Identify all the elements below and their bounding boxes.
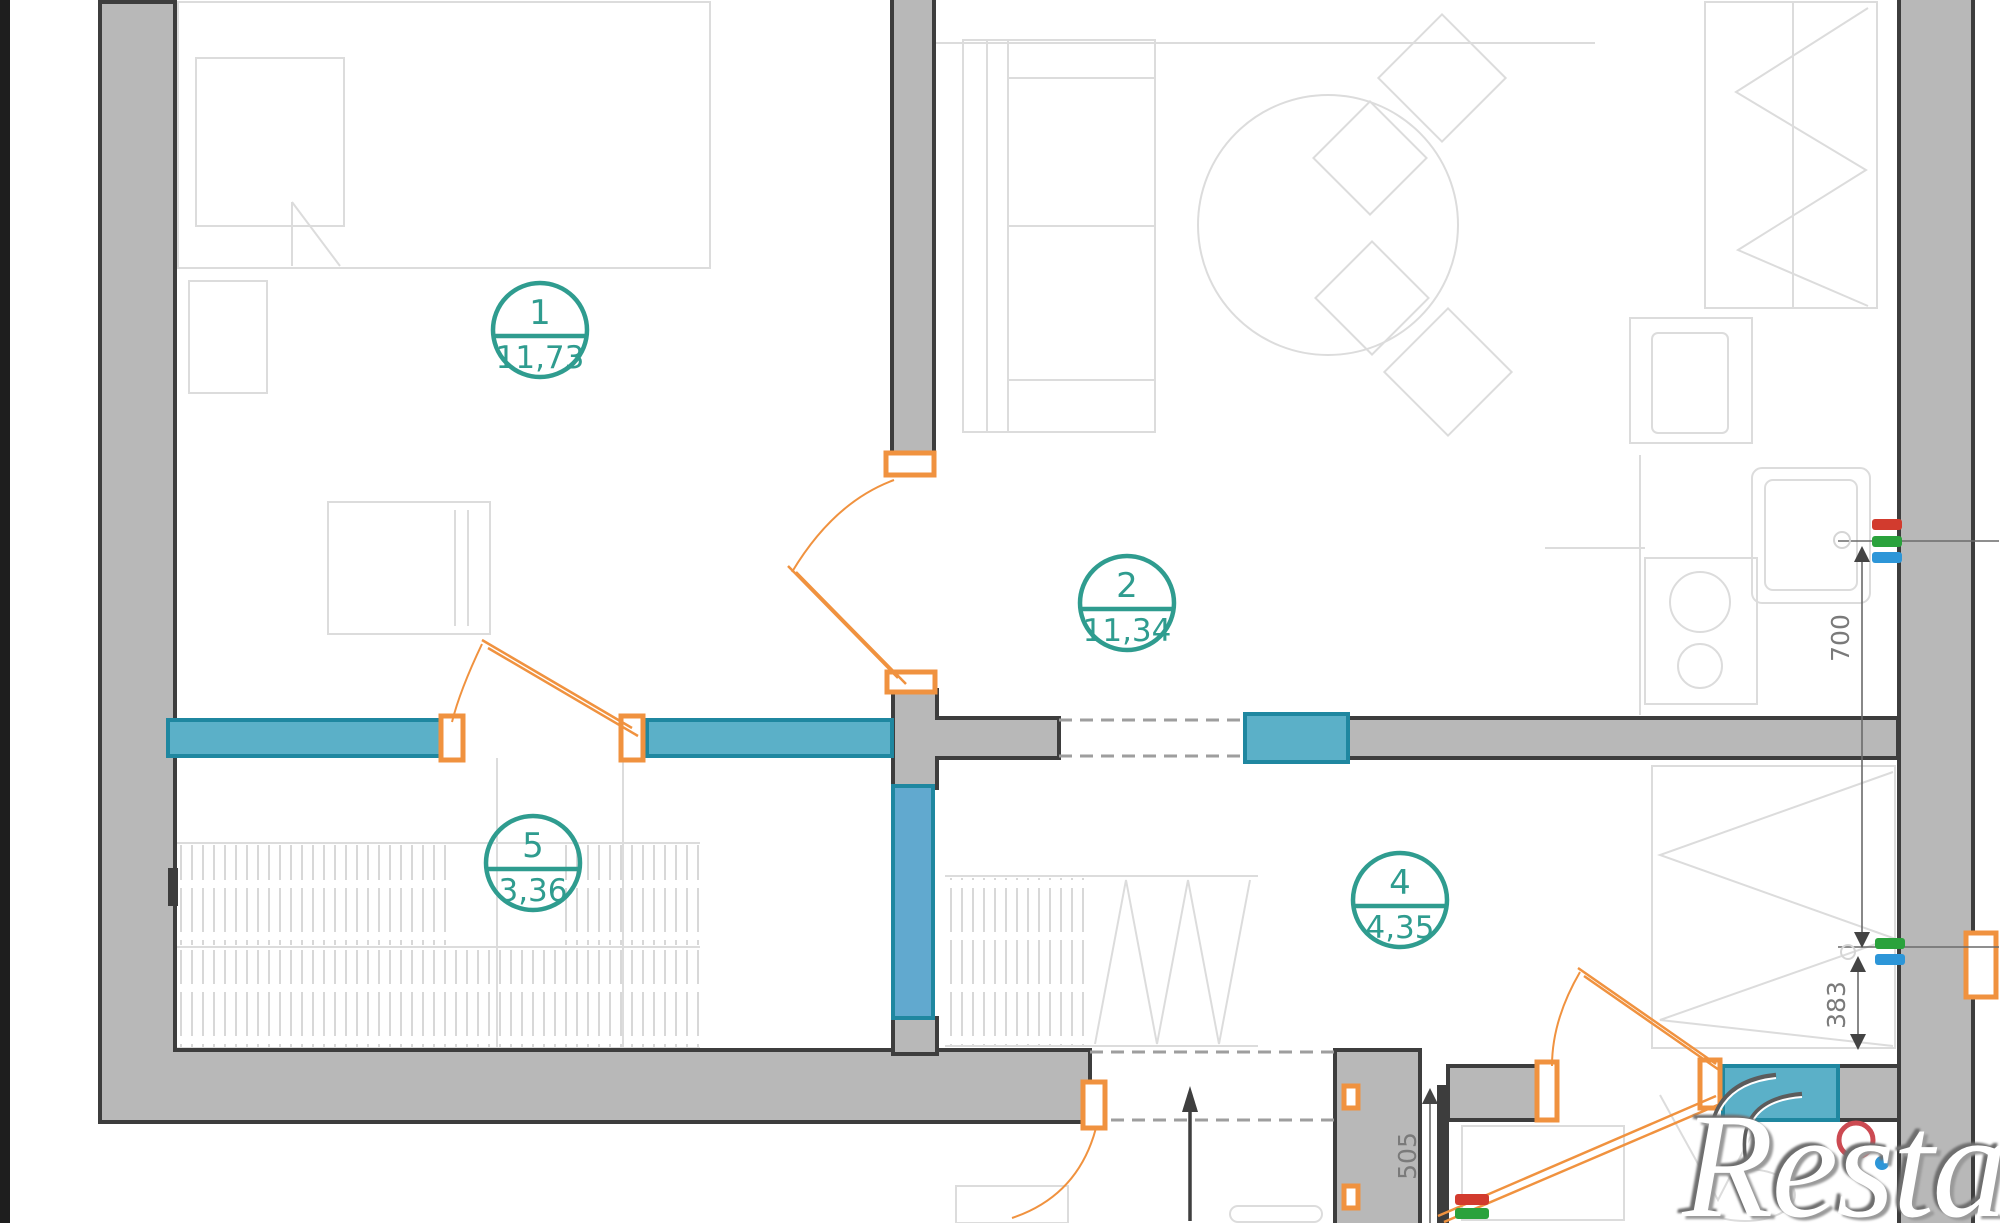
door-leaf <box>788 566 906 684</box>
sofa <box>963 40 1155 432</box>
chair <box>1315 241 1428 354</box>
counter-line <box>1545 455 1645 715</box>
washing-machine-door <box>1652 333 1728 433</box>
door-leaf <box>482 640 638 736</box>
chair <box>1313 101 1426 214</box>
washing-machine <box>1630 318 1752 443</box>
chair <box>1384 308 1511 435</box>
door-leaf <box>1578 968 1722 1072</box>
central-post <box>893 690 1059 788</box>
door-jamb <box>1344 1086 1358 1108</box>
closet-hangers <box>1736 8 1868 306</box>
dim-node <box>1834 532 1850 548</box>
room-label-4: 4 4,35 <box>1353 853 1447 947</box>
bed <box>178 2 710 268</box>
room-area: 4,35 <box>1365 910 1434 946</box>
door-jamb <box>1966 933 1996 997</box>
dimension-383: 383 <box>1822 981 1851 1029</box>
dimension-700: 700 <box>1826 614 1855 662</box>
nightstand <box>189 281 267 393</box>
bathroom-thin-wall <box>1437 1085 1449 1223</box>
riser-bar-red <box>1872 519 1902 530</box>
door-swing-arc <box>1012 1128 1096 1218</box>
burner <box>1678 644 1722 688</box>
right-outer-wall <box>1899 0 1973 1223</box>
riser-bar-blue <box>1875 954 1905 965</box>
room-number: 2 <box>1116 566 1138 606</box>
desk-shelf <box>455 510 468 626</box>
door-swing-arc <box>1552 972 1580 1066</box>
room-area: 11,34 <box>1083 613 1172 649</box>
bed-pillow <box>196 58 344 226</box>
door-jamb <box>1537 1062 1557 1120</box>
dim-arrow <box>1422 1088 1438 1104</box>
room-label-1: 1 11,73 <box>493 283 587 377</box>
desk <box>328 502 490 634</box>
room-number: 1 <box>529 293 551 333</box>
bathroom-wall-left <box>1448 1066 1538 1120</box>
riser-bar-green <box>1455 1208 1489 1219</box>
window <box>647 720 892 756</box>
room-label-2: 2 11,34 <box>1080 556 1174 650</box>
kitchen-sink <box>1752 468 1870 603</box>
door-jamb <box>441 716 463 760</box>
hall-hatch <box>945 878 1091 1046</box>
door-jamb <box>1083 1082 1105 1128</box>
bed-fold <box>292 202 340 266</box>
riser-bar-red <box>1455 1194 1489 1205</box>
floor-plan: 700 383 505 1 11,73 2 11,34 <box>0 0 2000 1223</box>
riser-bar-green <box>1872 536 1902 547</box>
window <box>1245 714 1348 762</box>
watermark-text: Restate <box>1681 1083 2000 1223</box>
furniture-layer <box>152 2 1895 1223</box>
glazed-partition <box>893 786 933 1018</box>
entry-arrow <box>1182 1086 1198 1221</box>
room-area: 11,73 <box>496 340 585 376</box>
door-jamb <box>1344 1186 1358 1208</box>
outer-boundary-line <box>0 0 10 1223</box>
mid-wall-right <box>1348 718 1898 758</box>
wall-nib <box>168 868 178 906</box>
sofa-lines <box>987 40 1155 432</box>
wardrobe-hatch <box>152 845 452 945</box>
room-number: 5 <box>522 826 544 866</box>
door-swing-arc <box>452 644 482 722</box>
door-swing-arc <box>792 480 894 572</box>
closet-top-right <box>1705 2 1877 308</box>
door-jamb <box>886 453 934 475</box>
entry-arrow-head-icon <box>1182 1086 1198 1112</box>
chair <box>1378 14 1505 141</box>
shower-tray <box>1462 1126 1624 1220</box>
riser-bar-green <box>1875 938 1905 949</box>
watermark: Restate Restate Restate <box>1677 1075 2000 1223</box>
dim-arrow <box>1854 932 1870 948</box>
riser-bar-blue <box>1872 552 1902 563</box>
burner <box>1670 572 1730 632</box>
window <box>168 720 441 756</box>
dimension-505: 505 <box>1393 1132 1422 1180</box>
shoe-cabinet <box>1230 1206 1322 1222</box>
openings-layer <box>1059 720 1335 1120</box>
wardrobe-hatch <box>152 950 700 1048</box>
hall-hangers <box>1095 880 1250 1044</box>
middle-wall <box>892 0 934 464</box>
lower-post <box>893 1018 937 1054</box>
kitchen-sink-basin <box>1765 480 1857 590</box>
room-area: 3,36 <box>498 873 567 909</box>
dining-table <box>1198 95 1458 355</box>
room-number: 4 <box>1389 863 1411 903</box>
